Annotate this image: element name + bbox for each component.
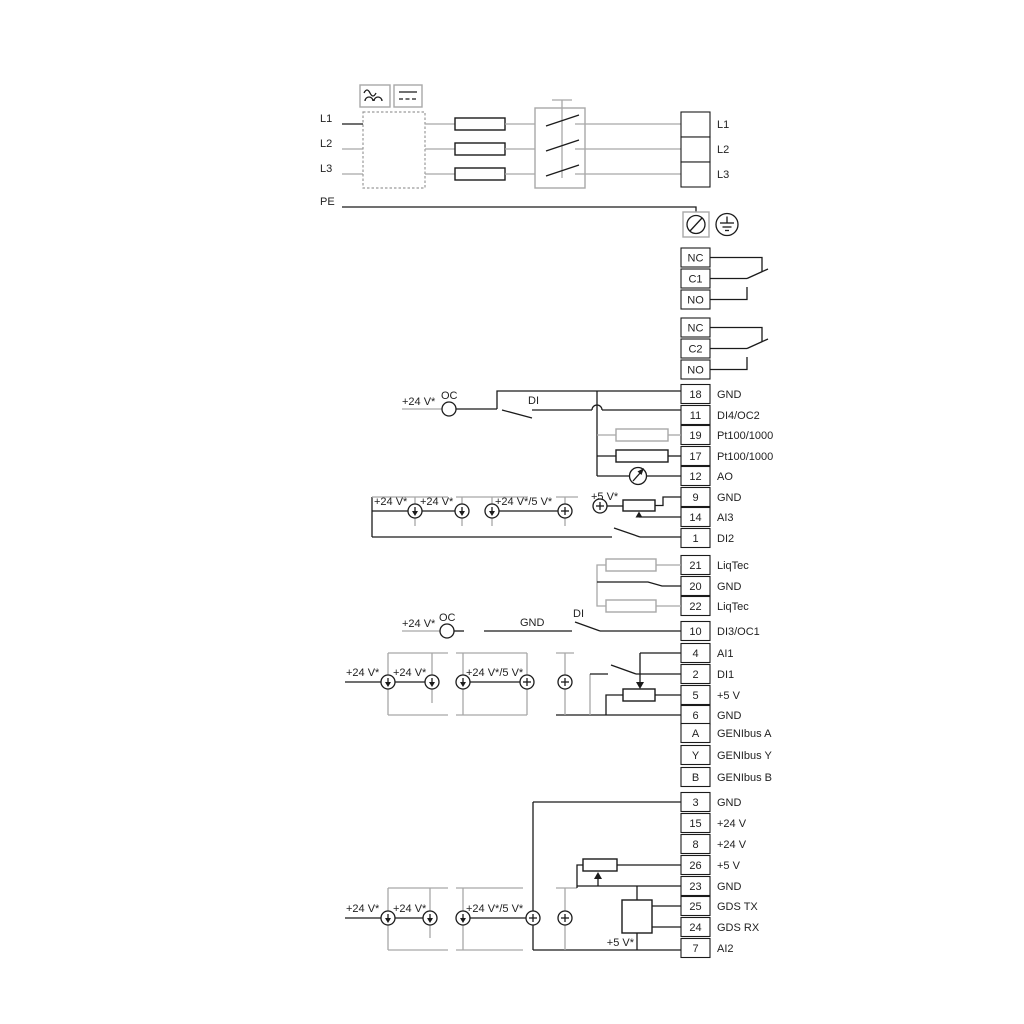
relay2-nc: NC — [688, 323, 704, 335]
svg-text:DI2: DI2 — [717, 533, 734, 545]
terminal-row: 10DI3/OC1 — [681, 622, 760, 641]
meter-icon — [630, 468, 647, 485]
terminal-row: 15+24 V — [681, 814, 747, 833]
svg-text:19: 19 — [689, 430, 701, 442]
current-source-icon — [558, 675, 572, 689]
liqtec-sensor-2 — [606, 600, 656, 612]
terminal-row: 26+5 V — [681, 856, 741, 875]
terminal-row: 20GND — [681, 577, 742, 596]
svg-text:21: 21 — [689, 560, 701, 572]
svg-text:DI: DI — [528, 395, 539, 407]
svg-text:AI2: AI2 — [717, 943, 734, 955]
svg-text:20: 20 — [689, 581, 701, 593]
svg-text:GND: GND — [520, 617, 545, 629]
svg-text:+24 V*/5 V*: +24 V*/5 V* — [495, 496, 553, 508]
svg-text:8: 8 — [692, 839, 698, 851]
svg-text:B: B — [692, 772, 699, 784]
svg-text:+5 V*: +5 V* — [607, 937, 635, 949]
relay1-c1: C1 — [688, 274, 702, 286]
di4-switch — [502, 410, 532, 418]
svg-text:5: 5 — [692, 690, 698, 702]
svg-text:Pt100/1000: Pt100/1000 — [717, 451, 773, 463]
svg-text:AO: AO — [717, 471, 733, 483]
terminal-row: 19Pt100/1000 — [681, 426, 773, 445]
svg-text:+5 V: +5 V — [717, 690, 741, 702]
svg-text:7: 7 — [692, 943, 698, 955]
svg-text:GENIbus B: GENIbus B — [717, 772, 772, 784]
current-source-icon — [593, 499, 607, 513]
svg-text:25: 25 — [689, 901, 701, 913]
svg-text:3: 3 — [692, 797, 698, 809]
svg-text:AI3: AI3 — [717, 512, 734, 524]
svg-text:1: 1 — [692, 533, 698, 545]
output-label-l1: L1 — [717, 119, 729, 131]
relay-1-contact — [710, 258, 768, 300]
svg-text:18: 18 — [689, 389, 701, 401]
current-sink-icon — [423, 911, 437, 925]
svg-text:+24 V*: +24 V* — [346, 903, 380, 915]
main-switch — [535, 100, 585, 188]
terminal-row: 7AI2 — [681, 939, 734, 958]
svg-text:DI3/OC1: DI3/OC1 — [717, 626, 760, 638]
potentiometer — [623, 500, 655, 518]
input-label-l1: L1 — [320, 113, 332, 125]
svg-text:+24 V*: +24 V* — [346, 667, 380, 679]
di3-terminal: 10DI3/OC1 — [681, 622, 760, 641]
mains-section: L1 L2 L3 PE — [320, 85, 738, 237]
svg-text:GENIbus Y: GENIbus Y — [717, 750, 772, 762]
input-label-l3: L3 — [320, 163, 332, 175]
svg-text:Pt100/1000: Pt100/1000 — [717, 430, 773, 442]
svg-text:GND: GND — [717, 710, 742, 722]
svg-text:GND: GND — [717, 881, 742, 893]
output-label-l2: L2 — [717, 144, 729, 156]
terminal-row: 23GND — [681, 877, 742, 896]
svg-text:+24 V*: +24 V* — [402, 396, 436, 408]
fuse-l3 — [455, 168, 505, 180]
svg-text:6: 6 — [692, 710, 698, 722]
svg-text:+24 V*: +24 V* — [402, 618, 436, 630]
earth-symbol-icon — [716, 214, 738, 236]
mains-filter-box — [363, 112, 425, 188]
current-sink-icon — [425, 675, 439, 689]
ai3-circuit: +24 V* +24 V* +24 V*/5 V* +5 V* — [372, 491, 681, 537]
svg-text:14: 14 — [689, 512, 701, 524]
svg-text:OC: OC — [439, 612, 456, 624]
fuse-l2 — [455, 143, 505, 155]
svg-text:+24 V*/5 V*: +24 V*/5 V* — [466, 667, 524, 679]
terminal-row: 9GND — [681, 488, 742, 507]
liqtec-terminals: 21LiqTec 20GND 22LiqTec — [681, 556, 749, 616]
svg-text:12: 12 — [689, 471, 701, 483]
relay2-no: NO — [687, 365, 704, 377]
svg-text:DI: DI — [573, 608, 584, 620]
ac-waveform-icon — [360, 85, 390, 107]
svg-text:11: 11 — [690, 410, 701, 422]
pe-terminal — [342, 207, 709, 237]
terminal-group-2: 4AI1 2DI1 5+5 V 6GND — [681, 644, 742, 725]
svg-text:4: 4 — [692, 648, 698, 660]
terminal-row: 25GDS TX — [681, 897, 758, 916]
di2-switch — [614, 528, 640, 537]
svg-text:2: 2 — [692, 669, 698, 681]
svg-text:+24 V*: +24 V* — [420, 496, 454, 508]
svg-text:22: 22 — [689, 601, 701, 613]
svg-text:+24 V*: +24 V* — [393, 903, 427, 915]
svg-text:LiqTec: LiqTec — [717, 560, 749, 572]
svg-text:GND: GND — [717, 797, 742, 809]
output-terminal-block: L1 L2 L3 — [681, 112, 729, 187]
terminal-row: 2DI1 — [681, 665, 734, 684]
relay-2-block: NC C2 NO — [681, 318, 768, 379]
svg-text:GDS RX: GDS RX — [717, 922, 760, 934]
terminal-row: 14AI3 — [681, 508, 734, 527]
svg-text:+24 V*: +24 V* — [374, 496, 408, 508]
terminal-row: 6GND — [681, 706, 742, 725]
terminal-row: AGENIbus A — [681, 724, 772, 743]
svg-text:Y: Y — [692, 750, 700, 762]
ai1-circuit: +24 V* +24 V* +24 V*/5 V* — [345, 653, 681, 715]
terminal-row: 8+24 V — [681, 835, 747, 854]
svg-text:DI4/OC2: DI4/OC2 — [717, 410, 760, 422]
terminal-row: 1DI2 — [681, 529, 734, 548]
svg-text:+24 V*/5 V*: +24 V*/5 V* — [466, 903, 524, 915]
current-source-icon — [526, 911, 540, 925]
gds-sensor-box — [622, 900, 652, 933]
svg-text:10: 10 — [689, 626, 701, 638]
terminal-row: BGENIbus B — [681, 768, 772, 787]
svg-text:GDS TX: GDS TX — [717, 901, 758, 913]
terminal-row: 12AO — [681, 467, 733, 486]
svg-text:A: A — [692, 728, 700, 740]
relay2-c2: C2 — [688, 344, 702, 356]
input-label-pe: PE — [320, 196, 335, 208]
current-source-icon — [558, 911, 572, 925]
svg-text:+5 V: +5 V — [717, 860, 741, 872]
terminal-row: 11DI4/OC2 — [681, 406, 760, 425]
di3-switch — [575, 622, 600, 631]
terminal-group-1: 18GND 11DI4/OC2 19Pt100/1000 17Pt100/100… — [681, 385, 773, 548]
svg-text:DI1: DI1 — [717, 669, 734, 681]
svg-text:24: 24 — [689, 922, 701, 934]
di4-circuit: +24 V* OC DI — [402, 390, 681, 485]
terminal-row: 18GND — [681, 385, 742, 404]
svg-text:26: 26 — [689, 860, 701, 872]
relay1-no: NO — [687, 295, 704, 307]
liqtec-circuit — [597, 559, 681, 612]
terminal-row: 21LiqTec — [681, 556, 749, 575]
di1-switch — [611, 665, 636, 674]
svg-text:17: 17 — [689, 451, 701, 463]
svg-text:LiqTec: LiqTec — [717, 601, 749, 613]
relay-2-contact — [710, 328, 768, 370]
terminal-row: 3GND — [681, 793, 742, 812]
potentiometer — [583, 859, 617, 871]
terminal-row: 17Pt100/1000 — [681, 447, 773, 466]
current-source-icon — [558, 504, 572, 518]
svg-text:GND: GND — [717, 389, 742, 401]
output-label-l3: L3 — [717, 169, 729, 181]
svg-text:9: 9 — [692, 492, 698, 504]
svg-text:23: 23 — [689, 881, 701, 893]
wiring-diagram: L1 L2 L3 PE — [0, 0, 1024, 1024]
fuse-l1 — [455, 118, 505, 130]
pt100-sensor-2 — [616, 450, 668, 462]
gds-circuit: +24 V* +24 V* +24 V*/5 V* +5 V* — [345, 802, 681, 950]
svg-text:GND: GND — [717, 581, 742, 593]
svg-text:GND: GND — [717, 492, 742, 504]
input-label-l2: L2 — [320, 138, 332, 150]
svg-text:15: 15 — [689, 818, 701, 830]
current-source-icon — [520, 675, 534, 689]
terminal-row: 24GDS RX — [681, 918, 760, 937]
open-collector-icon — [440, 624, 454, 638]
svg-text:GENIbus A: GENIbus A — [717, 728, 772, 740]
svg-text:+24 V: +24 V — [717, 818, 747, 830]
current-sink-icon — [455, 504, 469, 518]
relay-1-block: NC C1 NO — [681, 248, 768, 309]
terminal-row: YGENIbus Y — [681, 746, 772, 765]
svg-text:OC: OC — [441, 390, 458, 402]
terminal-row: 4AI1 — [681, 644, 734, 663]
svg-text:+24 V*: +24 V* — [393, 667, 427, 679]
potentiometer — [623, 689, 655, 701]
relay1-nc: NC — [688, 253, 704, 265]
terminal-group-3: 3GND 15+24 V 8+24 V 26+5 V 23GND 25GDS T… — [681, 793, 760, 958]
open-collector-icon — [442, 402, 456, 416]
dc-symbol-icon — [394, 85, 422, 107]
terminal-row: 5+5 V — [681, 686, 741, 705]
pt100-sensor-1 — [616, 429, 668, 441]
svg-text:AI1: AI1 — [717, 648, 734, 660]
liqtec-sensor-1 — [606, 559, 656, 571]
terminal-row: 22LiqTec — [681, 597, 749, 616]
svg-text:+24 V: +24 V — [717, 839, 747, 851]
genibus-terminals: AGENIbus A YGENIbus Y BGENIbus B — [681, 724, 772, 787]
